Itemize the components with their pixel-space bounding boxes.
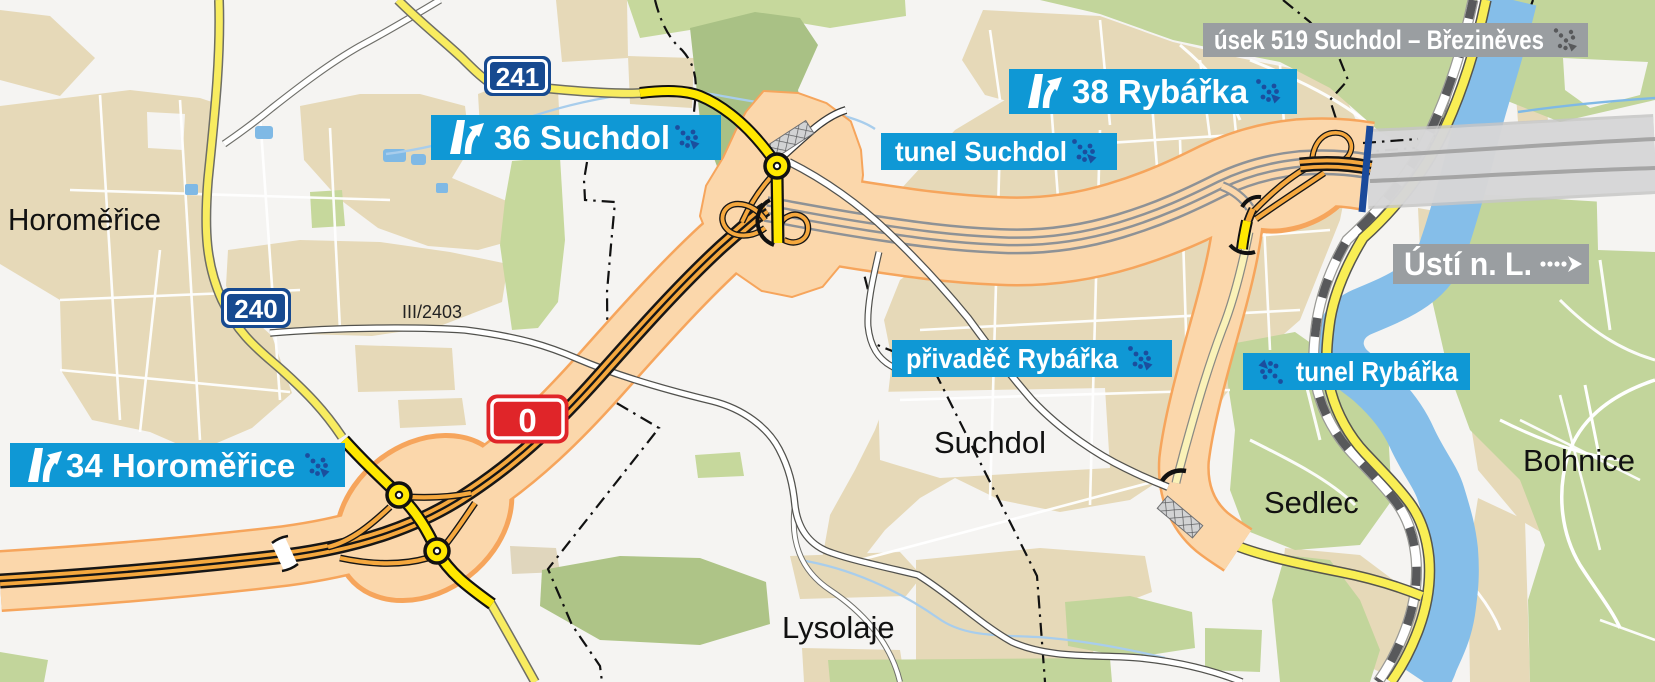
svg-text:0: 0 [518,402,536,439]
svg-text:38 Rybářka: 38 Rybářka [1072,73,1249,110]
svg-text:přivaděč Rybářka: přivaděč Rybářka [906,343,1118,374]
svg-text:36 Suchdol: 36 Suchdol [494,119,670,156]
svg-text:34 Horoměřice: 34 Horoměřice [66,447,295,484]
svg-text:Horoměřice: Horoměřice [8,202,161,237]
svg-text:240: 240 [234,294,277,324]
svg-text:tunel Suchdol: tunel Suchdol [895,136,1067,167]
svg-text:241: 241 [496,62,539,92]
svg-text:tunel Rybářka: tunel Rybářka [1296,356,1458,387]
svg-text:III/2403: III/2403 [402,302,462,322]
svg-text:Ústí n. L.: Ústí n. L. [1404,246,1532,282]
svg-text:úsek 519 Suchdol – Březiněves: úsek 519 Suchdol – Březiněves [1214,25,1544,55]
svg-text:Sedlec: Sedlec [1264,485,1359,520]
svg-text:Bohnice: Bohnice [1523,443,1635,478]
svg-text:Lysolaje: Lysolaje [782,610,895,645]
svg-text:Suchdol: Suchdol [934,425,1046,460]
